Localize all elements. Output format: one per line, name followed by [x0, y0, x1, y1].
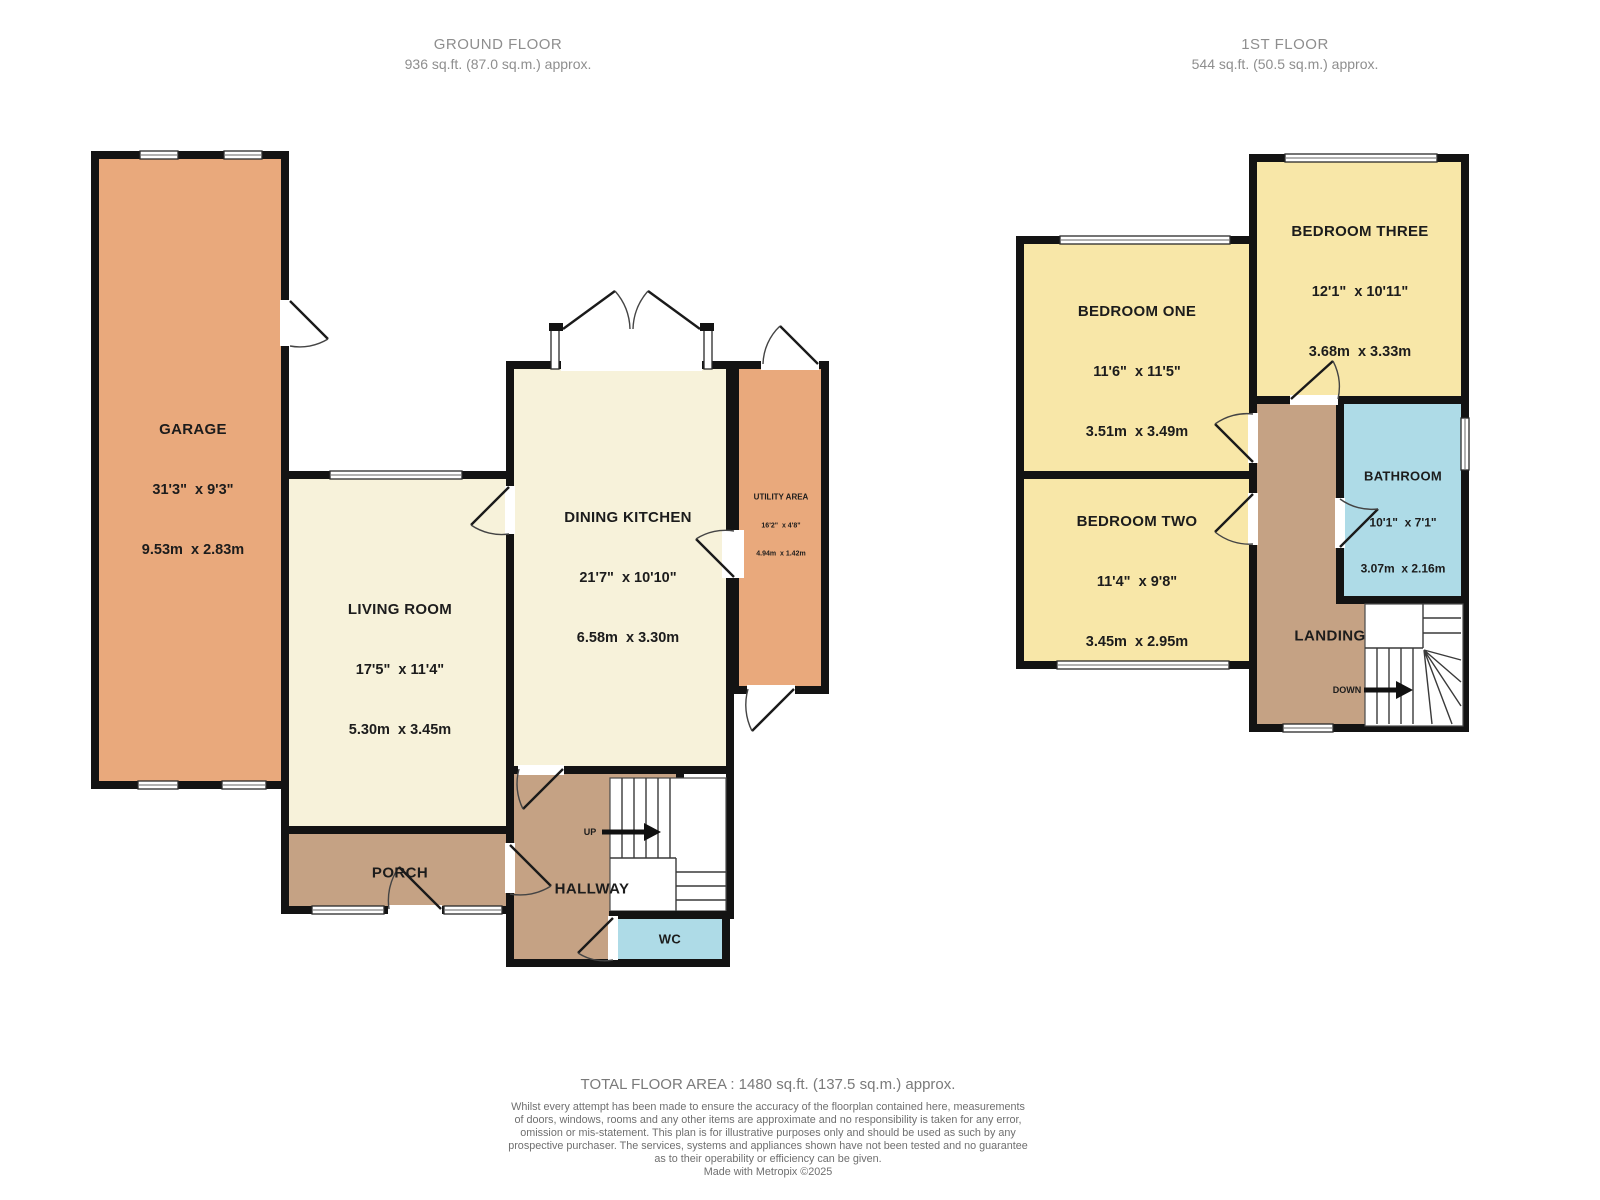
utility-top-door-opening [761, 360, 819, 370]
bathroom-imperial: 10'1" x 7'1" [1361, 515, 1446, 531]
utility-area-metric: 4.94m x 1.42m [754, 550, 809, 560]
landing-floor-upper [1257, 404, 1336, 608]
ground-floor-title: GROUND FLOOR [405, 36, 592, 53]
down-label: DOWN [1333, 685, 1362, 695]
dining-kitchen-imperial: 21'7" x 10'10" [564, 568, 692, 588]
porch-label: PORCH [372, 865, 428, 882]
dining-kitchen-name: DINING KITCHEN [564, 508, 692, 528]
disclaimer-line-5: as to their operability or efficiency ca… [508, 1153, 1028, 1166]
landing-left-wall [1249, 661, 1257, 732]
disclaimer-line-1: Whilst every attempt has been made to en… [508, 1101, 1028, 1114]
bedroom-one-label: BEDROOM ONE 11'6" x 11'5" 3.51m x 3.49m [1078, 262, 1196, 462]
utility-area-label: UTILITY AREA 16'2" x 4'8" 4.94m x 1.42m [754, 474, 809, 569]
utility-area-name: UTILITY AREA [754, 493, 809, 503]
floorplan-page: GROUND FLOOR 936 sq.ft. (87.0 sq.m.) app… [0, 0, 1600, 1200]
bedroom-three-metric: 3.68m x 3.33m [1291, 342, 1428, 362]
disclaimer-line-2: of doors, windows, rooms and any other i… [508, 1114, 1028, 1127]
garage-side-door-leaf [290, 301, 328, 339]
kitchen-utility-door-opening [722, 530, 744, 578]
bathroom-name: BATHROOM [1361, 469, 1446, 485]
bedroom-two-door-opening [1248, 493, 1258, 545]
up-label: UP [584, 827, 597, 837]
garage-side-door-arc [290, 339, 328, 347]
ground-floor-area: 936 sq.ft. (87.0 sq.m.) approx. [405, 56, 592, 72]
garage-side-door-opening [280, 300, 290, 346]
bathroom-metric: 3.07m x 2.16m [1361, 562, 1446, 578]
stairwell-first [1365, 604, 1463, 726]
garage-imperial: 31'3" x 9'3" [142, 480, 244, 500]
bay-window-left [551, 329, 559, 369]
bedroom-one-imperial: 11'6" x 11'5" [1078, 362, 1196, 382]
bedroom-two-imperial: 11'4" x 9'8" [1077, 572, 1198, 592]
garage-name: GARAGE [142, 420, 244, 440]
garage-label: GARAGE 31'3" x 9'3" 9.53m x 2.83m [142, 380, 244, 580]
bedroom-two-metric: 3.45m x 2.95m [1077, 632, 1198, 652]
bedroom-three-label: BEDROOM THREE 12'1" x 10'11" 3.68m x 3.3… [1291, 182, 1428, 382]
wc-label: WC [659, 932, 681, 947]
living-room-name: LIVING ROOM [348, 600, 452, 620]
utility-top-door-leaf [780, 326, 818, 364]
dining-kitchen-metric: 6.58m x 3.30m [564, 628, 692, 648]
bedroom-three-imperial: 12'1" x 10'11" [1291, 282, 1428, 302]
living-room-metric: 5.30m x 3.45m [348, 720, 452, 740]
hallway-label: HALLWAY [555, 881, 630, 898]
bathroom-door-opening [1335, 498, 1345, 548]
living-room-label: LIVING ROOM 17'5" x 11'4" 5.30m x 3.45m [348, 560, 452, 760]
landing-label: LANDING [1294, 628, 1365, 645]
metropix-credit: Made with Metropix ©2025 [508, 1166, 1028, 1179]
bay-wall-stub-right [700, 323, 714, 331]
utility-rear-door-leaf [752, 689, 794, 731]
first-staircase [1364, 604, 1463, 726]
bedroom-one-name: BEDROOM ONE [1078, 302, 1196, 322]
ground-floor-header: GROUND FLOOR 936 sq.ft. (87.0 sq.m.) app… [405, 36, 592, 72]
french-door-arcs [615, 291, 648, 329]
porch-hallway-door-opening [505, 843, 515, 893]
living-kitchen-door-opening [505, 486, 515, 534]
landing-floor-lower [1257, 604, 1365, 726]
kitchen-bay [549, 291, 714, 371]
first-floor-header: 1ST FLOOR 544 sq.ft. (50.5 sq.m.) approx… [1192, 36, 1379, 72]
first-floor-area: 544 sq.ft. (50.5 sq.m.) approx. [1192, 56, 1379, 72]
living-room-imperial: 17'5" x 11'4" [348, 660, 452, 680]
bedroom-three-name: BEDROOM THREE [1291, 222, 1428, 242]
utility-top-door-arc [763, 326, 780, 364]
garage-metric: 9.53m x 2.83m [142, 540, 244, 560]
bedroom-two-name: BEDROOM TWO [1077, 512, 1198, 532]
french-door-leaves [563, 291, 700, 329]
bedroom-three-door-opening [1290, 395, 1338, 405]
floorplan-drawing [0, 0, 1600, 1200]
bay-window-right [704, 329, 712, 369]
first-floor-title: 1ST FLOOR [1192, 36, 1379, 53]
bedroom-two-label: BEDROOM TWO 11'4" x 9'8" 3.45m x 2.95m [1077, 472, 1198, 672]
bedroom-one-door-opening [1248, 413, 1258, 463]
utility-rear-door-opening [747, 685, 795, 695]
disclaimer-line-4: prospective purchaser. The services, sys… [508, 1140, 1028, 1153]
front-door-opening [388, 905, 442, 915]
dining-kitchen-label: DINING KITCHEN 21'7" x 10'10" 6.58m x 3.… [564, 468, 692, 668]
footer: TOTAL FLOOR AREA : 1480 sq.ft. (137.5 sq… [508, 1076, 1028, 1179]
disclaimer-line-3: omission or mis-statement. This plan is … [508, 1127, 1028, 1140]
utility-rear-door-arc [746, 689, 752, 731]
outer-wall-segment [726, 770, 734, 919]
bay-floor [561, 333, 702, 371]
utility-area-imperial: 16'2" x 4'8" [754, 521, 809, 531]
bathroom-label: BATHROOM 10'1" x 7'1" 3.07m x 2.16m [1361, 438, 1446, 593]
bedroom-one-metric: 3.51m x 3.49m [1078, 422, 1196, 442]
total-floor-area: TOTAL FLOOR AREA : 1480 sq.ft. (137.5 sq… [508, 1076, 1028, 1093]
bay-wall-stub-left [549, 323, 563, 331]
